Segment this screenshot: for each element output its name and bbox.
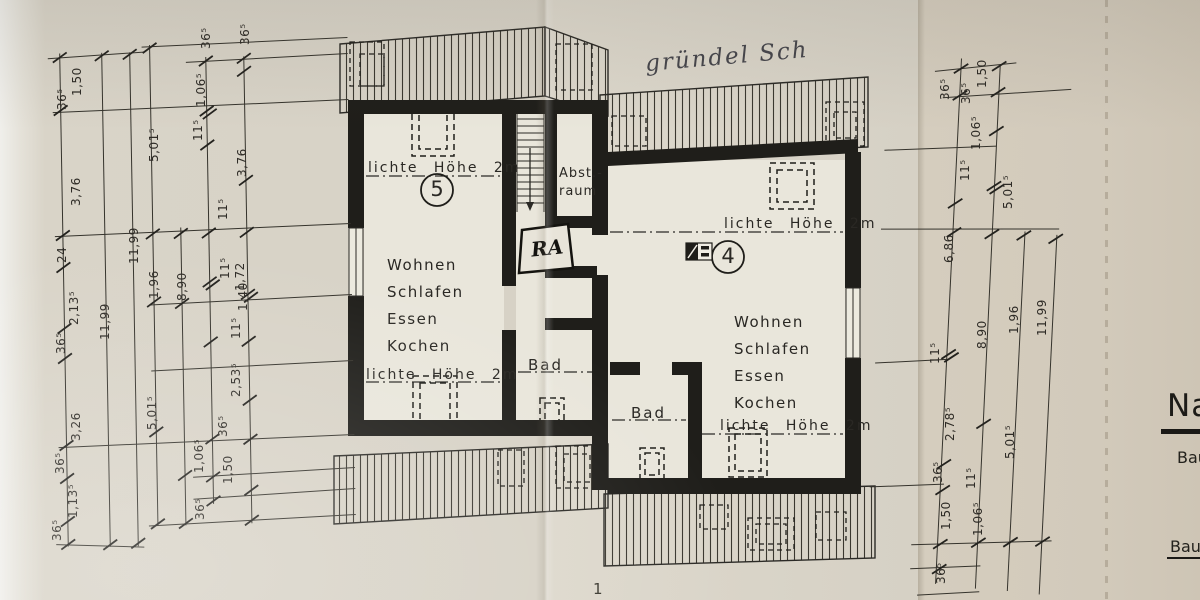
detail-marker-icon <box>686 243 712 260</box>
dimension-label: 1,06⁵ <box>971 502 985 536</box>
dimension-label: 11,99 <box>127 227 141 264</box>
dimension-label: 11⁵ <box>229 317 243 339</box>
dimension-label: 2,53⁵ <box>229 363 243 397</box>
title-block-rule <box>1161 429 1200 434</box>
title-block-line1: Bau <box>1177 448 1200 467</box>
dimension-label: 36⁵ <box>216 415 230 437</box>
dimension-label: 1,50 <box>221 455 235 484</box>
dimension-label: 36⁵ <box>931 461 945 483</box>
dimension-label: 36⁵ <box>50 519 64 541</box>
dimension-label: 8,90 <box>975 320 989 349</box>
dimension-label: 1,13⁵ <box>66 484 80 518</box>
dimension-label: 1,96 <box>1007 305 1021 334</box>
dimension-label: 24 <box>55 247 69 263</box>
dimension-label: 5,01⁵ <box>145 396 159 430</box>
dimension-label: 36⁵ <box>199 27 213 49</box>
dimension-label: 3,76 <box>69 177 83 206</box>
revision-tag-text: RA <box>530 234 564 261</box>
room-label: Kochen <box>734 390 811 417</box>
dimension-label: 11⁵ <box>964 467 978 489</box>
unit5-number: 5 <box>421 177 453 201</box>
dimension-label: 5,01⁵ <box>1001 175 1015 209</box>
unit4-room-list: Wohnen Schlafen Essen Kochen <box>734 309 811 417</box>
storage-room-label-line1: Abst.- <box>559 166 603 181</box>
title-block-heading: Na <box>1167 388 1200 424</box>
dimension-label: 36⁵ <box>938 78 952 100</box>
dimension-label: 11⁵ <box>216 198 230 220</box>
room-label: Wohnen <box>387 252 464 279</box>
unit4-number: 4 <box>712 244 744 268</box>
dimension-label: 1,50 <box>70 67 84 96</box>
dimension-label: 2,13⁵ <box>67 291 81 325</box>
room-label: Kochen <box>387 333 464 360</box>
page-number: 1 <box>593 580 603 598</box>
unit4-bath-label: Bad <box>631 404 666 422</box>
dimension-lines-left <box>47 38 356 551</box>
dimension-label: 5,01⁵ <box>1003 425 1017 459</box>
dimension-label: 36⁵ <box>934 562 948 584</box>
dimension-label: 1,50 <box>939 501 953 530</box>
dimension-label: 11⁵ <box>218 257 232 279</box>
room-label: Schlafen <box>734 336 811 363</box>
dimension-label: 1,06⁵ <box>194 73 208 107</box>
dimension-label: 36⁵ <box>193 498 207 520</box>
dimension-label: 8,90 <box>175 272 189 301</box>
dimension-label: 36⁵ <box>55 88 69 110</box>
dimension-label: 6,86 <box>942 234 956 263</box>
dimension-label: 2,78⁵ <box>943 407 957 441</box>
dimension-label: 1,50 <box>975 59 989 88</box>
dimension-label: 11,99 <box>1035 299 1049 336</box>
dimension-label: 3,76 <box>235 148 249 177</box>
dimension-label: 3,26 <box>69 412 83 441</box>
dimension-label: 11⁵ <box>191 119 205 141</box>
unit5-clear-height-top: lichte Höhe 2m <box>368 160 520 176</box>
unit4-clear-height-top: lichte Höhe 2m <box>724 216 876 232</box>
title-block-line2: Bau <box>1170 537 1200 556</box>
dimension-label: 11,99 <box>98 303 112 340</box>
dimension-label: 11⁵ <box>928 342 942 364</box>
dimension-label: 36⁵ <box>959 82 973 104</box>
dimension-label: 36⁵ <box>53 452 67 474</box>
room-label: Essen <box>387 306 464 333</box>
dimension-label: 1,96 <box>147 270 161 299</box>
dimension-label: 36⁵ <box>238 23 252 45</box>
dimension-label: 1,06⁵ <box>192 439 206 473</box>
unit5-clear-height-bottom: lichte Höhe 2m <box>366 367 518 383</box>
dimension-label: 11⁵ <box>958 159 972 181</box>
room-label: Schlafen <box>387 279 464 306</box>
room-label: Wohnen <box>734 309 811 336</box>
floor-plan-photo: gründel Sch lichte Höhe 2m 5 Wohnen Schl… <box>0 0 1200 600</box>
title-block-underline <box>1167 557 1200 559</box>
unit5-bath-label: Bad <box>528 356 563 374</box>
dimension-label: 1,06⁵ <box>969 116 983 150</box>
unit5-room-list: Wohnen Schlafen Essen Kochen <box>387 252 464 360</box>
unit4-clear-height-bottom: lichte Höhe 2m <box>720 418 872 434</box>
room-label: Essen <box>734 363 811 390</box>
dimension-label: 1,40 <box>236 282 250 311</box>
dimension-label: 36⁵ <box>54 332 68 354</box>
dimension-label: 5,01⁵ <box>147 128 161 162</box>
storage-room-label-line2: raum <box>559 184 597 199</box>
